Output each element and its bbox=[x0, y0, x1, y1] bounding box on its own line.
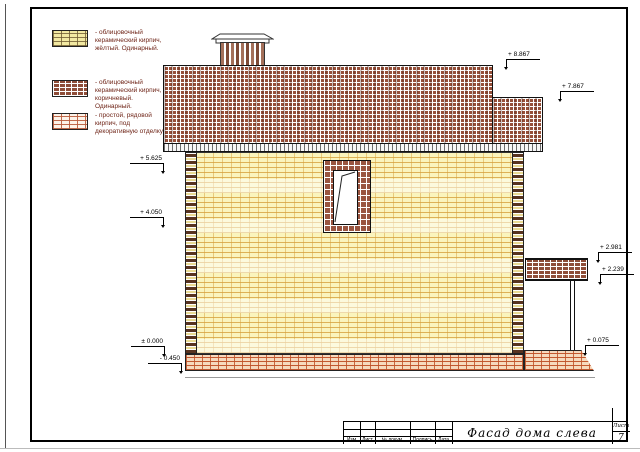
legend-text-brown-brick: - облицовочный керамический кирпич, кори… bbox=[95, 79, 167, 111]
legend-swatch-plain-brick bbox=[52, 113, 88, 130]
elevation-value: ± 0.000 bbox=[141, 338, 163, 345]
roof-eaves-band bbox=[163, 143, 543, 152]
elevation-value: + 5.625 bbox=[140, 155, 162, 162]
plinth bbox=[185, 354, 524, 371]
stamp-col-data: Дата bbox=[435, 437, 452, 444]
legend-swatch-brown-brick bbox=[52, 80, 88, 97]
elevation-value: + 4.050 bbox=[140, 209, 162, 216]
elevation-marker: + 2.239 bbox=[600, 266, 634, 275]
marker-tick-icon bbox=[560, 92, 561, 99]
elevation-marker: + 0.075 bbox=[585, 337, 619, 346]
elevation-marker: + 8.867 bbox=[506, 51, 540, 60]
marker-tick-icon bbox=[600, 275, 601, 282]
elevation-marker: + 7.867 bbox=[560, 83, 594, 92]
chimney bbox=[220, 42, 265, 66]
porch-canopy bbox=[525, 258, 588, 281]
elevation-value: + 2.239 bbox=[602, 266, 624, 273]
marker-tick-icon bbox=[506, 60, 507, 67]
elevation-marker: + 4.050 bbox=[130, 209, 164, 218]
roof-main bbox=[163, 65, 493, 144]
legend-text-plain-brick: - простой, рядовой кирпич, под декоратив… bbox=[95, 112, 167, 136]
elevation-value: - 0.450 bbox=[160, 355, 180, 362]
legend-text-yellow-brick: - облицовочный керамический кирпич, жёлт… bbox=[95, 29, 167, 53]
marker-tick-icon bbox=[163, 218, 164, 225]
stamp-col-docnum: № докум. bbox=[375, 437, 410, 444]
elevation-marker: - 0.450 bbox=[148, 355, 182, 364]
elevation-value: + 2.981 bbox=[600, 244, 622, 251]
corner-quoin-left bbox=[185, 152, 197, 354]
ground-line bbox=[185, 377, 595, 378]
roof-step-right bbox=[492, 97, 543, 144]
window bbox=[333, 170, 358, 225]
stamp-col-izm: Изм bbox=[343, 437, 360, 444]
marker-tick-icon bbox=[163, 164, 164, 171]
elevation-value: + 7.867 bbox=[562, 83, 584, 90]
marker-tick-icon bbox=[585, 346, 586, 353]
paper-edge-line bbox=[5, 4, 6, 448]
window-sash-lines bbox=[334, 171, 356, 223]
elevation-marker: + 2.981 bbox=[598, 244, 632, 253]
paper-bottom-line bbox=[0, 448, 640, 449]
elevation-value: + 8.867 bbox=[508, 51, 530, 58]
legend-swatch-yellow-brick bbox=[52, 30, 88, 47]
drawing-sheet: - облицовочный керамический кирпич, жёлт… bbox=[0, 0, 640, 452]
stamp-col-list: Лист bbox=[360, 437, 375, 444]
marker-tick-icon bbox=[598, 253, 599, 260]
corner-quoin-right bbox=[512, 152, 524, 354]
marker-tick-icon bbox=[164, 347, 165, 354]
elevation-marker: ± 0.000 bbox=[131, 338, 165, 347]
marker-tick-icon bbox=[181, 364, 182, 371]
sheet-label: Лист bbox=[612, 423, 630, 429]
stamp-col-podpis: Подпись bbox=[410, 437, 435, 444]
porch-column bbox=[570, 281, 575, 353]
drawing-title: Фасад дома слева bbox=[452, 421, 612, 444]
elevation-marker: + 5.625 bbox=[130, 155, 164, 164]
sheet-number: 7 bbox=[612, 433, 630, 443]
elevation-value: + 0.075 bbox=[587, 337, 609, 344]
